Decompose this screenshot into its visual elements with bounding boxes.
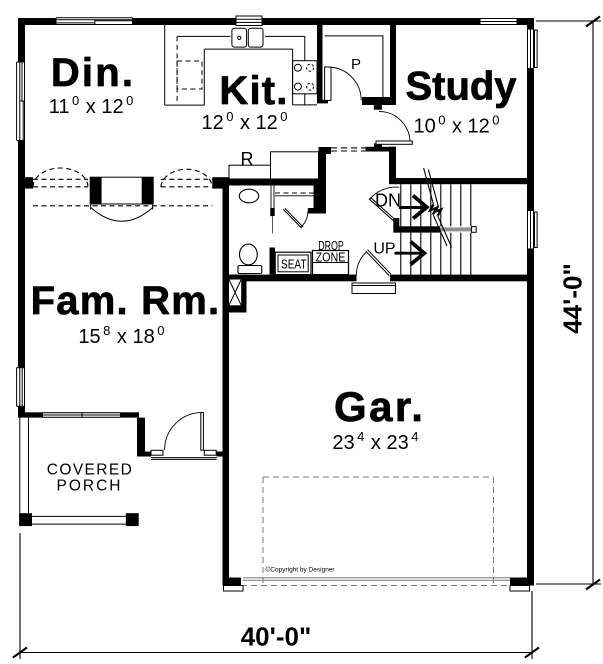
svg-text:UP: UP xyxy=(373,241,395,258)
svg-text:PORCH: PORCH xyxy=(57,478,123,495)
svg-text:P: P xyxy=(351,56,361,73)
svg-text:44'-0": 44'-0" xyxy=(558,263,588,334)
svg-text:Gar.: Gar. xyxy=(334,383,425,430)
svg-text:158 x 180: 158 x 180 xyxy=(78,323,164,348)
svg-text:120 x 120: 120 x 120 xyxy=(201,109,287,134)
svg-text:ZONE: ZONE xyxy=(316,250,346,264)
svg-text:Kit.: Kit. xyxy=(219,69,288,113)
svg-text:110 x 120: 110 x 120 xyxy=(49,93,134,118)
svg-text:R: R xyxy=(241,149,254,169)
svg-text:Fam. Rm.: Fam. Rm. xyxy=(31,279,221,323)
svg-text:Din.: Din. xyxy=(51,51,135,95)
svg-text:Study: Study xyxy=(405,65,517,109)
svg-text:©Copyright by Designer: ©Copyright by Designer xyxy=(266,566,336,574)
svg-text:DN: DN xyxy=(375,191,401,211)
svg-text:100 x 120: 100 x 120 xyxy=(413,113,499,138)
svg-text:COVERED: COVERED xyxy=(47,462,133,479)
svg-text:SEAT: SEAT xyxy=(281,257,307,272)
svg-text:234 x 234: 234 x 234 xyxy=(332,429,418,454)
svg-text:40'-0": 40'-0" xyxy=(241,622,312,652)
